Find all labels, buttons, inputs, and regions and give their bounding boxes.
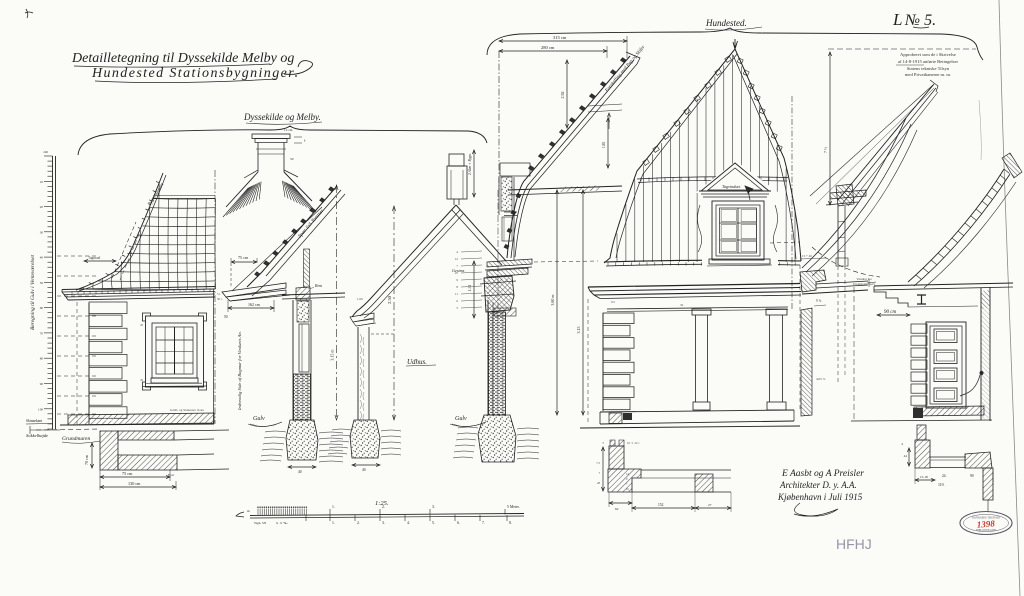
svg-text:3.15: 3.15 [576, 327, 581, 334]
svg-text:4: 4 [901, 442, 903, 446]
svg-text:3.: 3. [382, 521, 385, 525]
svg-text:Approberet som de i Skrivelse: Approberet som de i Skrivelse [900, 52, 956, 57]
svg-text:Kjøbenhavn i Juli 1915: Kjøbenhavn i Juli 1915 [777, 492, 863, 502]
svg-text:50: 50 [224, 315, 228, 319]
svg-text:Beregning til Gulv i Ventevære: Beregning til Gulv i Venteværelset [30, 254, 36, 330]
svg-text:Gulv: Gulv [253, 416, 265, 422]
svg-text:Tegn. 5/8: Tegn. 5/8 [254, 521, 266, 525]
svg-text:11: 11 [455, 292, 458, 296]
svg-text:HFHJ: HFHJ [836, 536, 872, 552]
svg-text:Dyssekilde og Melby.: Dyssekilde og Melby. [243, 112, 321, 122]
svg-text:44: 44 [904, 454, 908, 458]
svg-text:50: 50 [290, 157, 294, 161]
svg-text:30: 30 [40, 230, 44, 234]
svg-text:315 cm: 315 cm [553, 35, 567, 40]
svg-text:5 t.: 5 t. [217, 292, 221, 296]
svg-text:30 c.: 30 c. [217, 297, 223, 301]
svg-text:50: 50 [40, 281, 44, 285]
svg-text:5.: 5. [432, 521, 435, 525]
svg-text:Grundmuren: Grundmuren [62, 436, 90, 442]
svg-text:62: 62 [615, 507, 619, 511]
svg-text:af 14-8-1915 anførte Betingels: af 14-8-1915 anførte Betingelser [898, 59, 959, 64]
svg-text:Fod: Fod [168, 473, 174, 477]
svg-text:Skinnekant: Skinnekant [26, 419, 42, 423]
svg-text:1.85: 1.85 [602, 142, 606, 149]
svg-text:Hundested.: Hundested. [705, 18, 747, 28]
svg-text:8.: 8. [509, 521, 512, 525]
svg-text:70: 70 [40, 331, 44, 335]
svg-text:2.50: 2.50 [387, 295, 392, 304]
svg-text:Hundested Stationsbygninger: Hundested Stationsbygninger [91, 66, 295, 81]
svg-text:32: 32 [680, 303, 684, 307]
svg-text:2.: 2. [357, 521, 360, 525]
svg-text:10: 10 [40, 180, 44, 184]
svg-text:9 ¾: 9 ¾ [816, 299, 822, 303]
svg-text:3.60 m: 3.60 m [550, 294, 555, 306]
svg-text:10 5 22 c: 10 5 22 c [627, 441, 640, 445]
svg-text:2 Alen + Rygn.: 2 Alen + Rygn. [468, 153, 472, 175]
svg-text:1.60: 1.60 [357, 297, 363, 301]
svg-text:3.: 3. [432, 505, 435, 509]
svg-text:12 cm: 12 cm [284, 128, 293, 132]
svg-text:5 Meter.: 5 Meter. [507, 505, 520, 509]
svg-text:4.: 4. [407, 521, 410, 525]
svg-text:90: 90 [40, 382, 44, 386]
svg-text:152: 152 [658, 503, 664, 507]
svg-text:1.31: 1.31 [468, 285, 472, 291]
svg-text:2.: 2. [382, 505, 385, 509]
svg-text:100: 100 [38, 407, 43, 411]
svg-text:119.: 119. [938, 483, 945, 487]
svg-text:7.5: 7.5 [596, 461, 600, 465]
svg-text:280 cm: 280 cm [541, 45, 555, 50]
svg-text:Architekter D. y. A.A.: Architekter D. y. A.A. [779, 480, 857, 490]
svg-text:Tagvinduet: Tagvinduet [722, 184, 741, 189]
svg-text:L: L [892, 10, 902, 29]
svg-text:Tagmaal: Tagmaal [88, 256, 100, 260]
svg-text:12: 12 [455, 257, 459, 261]
svg-text:15-18: 15-18 [920, 475, 928, 479]
svg-text:15 + 40: 15 + 40 [802, 254, 812, 258]
svg-text:162 cm: 162 cm [248, 302, 261, 307]
svg-text:Jernb. og Stationsv. Kote: Jernb. og Stationsv. Kote [170, 408, 204, 412]
svg-text:Sokkelhøjde: Sokkelhøjde [26, 433, 48, 438]
svg-text:⊦: ⊦ [304, 138, 306, 143]
svg-text:6.: 6. [457, 521, 460, 525]
svg-text:¼ ⅛ ⅒: ¼ ⅛ ⅒ [276, 521, 288, 525]
svg-text:3.15 m: 3.15 m [330, 349, 335, 361]
svg-text:Indvendig Side af Bagmur for V: Indvendig Side af Bagmur for Vinduets An… [237, 331, 242, 411]
svg-text:m: m [247, 509, 250, 513]
svg-text:80: 80 [40, 357, 44, 361]
svg-text:Statens tekniske Tilsyn: Statens tekniske Tilsyn [907, 66, 950, 71]
svg-text:75 cm: 75 cm [122, 471, 133, 476]
svg-text:Vandret fra: Vandret fra [856, 277, 872, 281]
svg-text:7 ½: 7 ½ [823, 147, 828, 153]
svg-text:240: 240 [43, 150, 48, 154]
svg-text:90 cm: 90 cm [884, 310, 896, 315]
svg-text:20: 20 [40, 205, 44, 209]
svg-text:40: 40 [40, 256, 44, 260]
svg-text:130 cm: 130 cm [128, 481, 141, 486]
svg-text:1.: 1. [332, 505, 335, 509]
svg-text:70 cm: 70 cm [84, 454, 89, 465]
svg-text:7.: 7. [482, 521, 485, 525]
svg-text:Udhus.: Udhus. [407, 358, 427, 366]
svg-text:1.: 1. [332, 521, 335, 525]
svg-text:№ 5.: № 5. [904, 12, 936, 29]
svg-text:90: 90 [970, 474, 974, 478]
svg-text:24.: 24. [942, 474, 947, 478]
svg-text:40: 40 [362, 468, 366, 472]
svg-text:40: 40 [298, 470, 302, 474]
svg-text:2.92: 2.92 [560, 92, 565, 99]
svg-text:25: 25 [455, 271, 459, 275]
svg-text:med Privatbanerne m. m.: med Privatbanerne m. m. [905, 72, 951, 77]
svg-text:E Aasbt og A Preisler: E Aasbt og A Preisler [781, 469, 864, 479]
svg-text:Rem: Rem [314, 283, 322, 288]
svg-text:27: 27 [708, 503, 712, 507]
svg-text:Detailletegning til Dyssekilde: Detailletegning til Dyssekilde Melby og [71, 51, 294, 66]
svg-text:1398: 1398 [976, 518, 995, 529]
svg-text:4.05 ⅞: 4.05 ⅞ [816, 377, 826, 381]
svg-text:28: 28 [597, 481, 601, 485]
svg-text:Gulv: Gulv [455, 416, 467, 422]
svg-text:Sokkel: Sokkel [104, 418, 114, 422]
svg-text:60: 60 [40, 306, 44, 310]
svg-text:9.5: 9.5 [611, 300, 615, 304]
svg-text:75 cm: 75 cm [238, 255, 249, 260]
